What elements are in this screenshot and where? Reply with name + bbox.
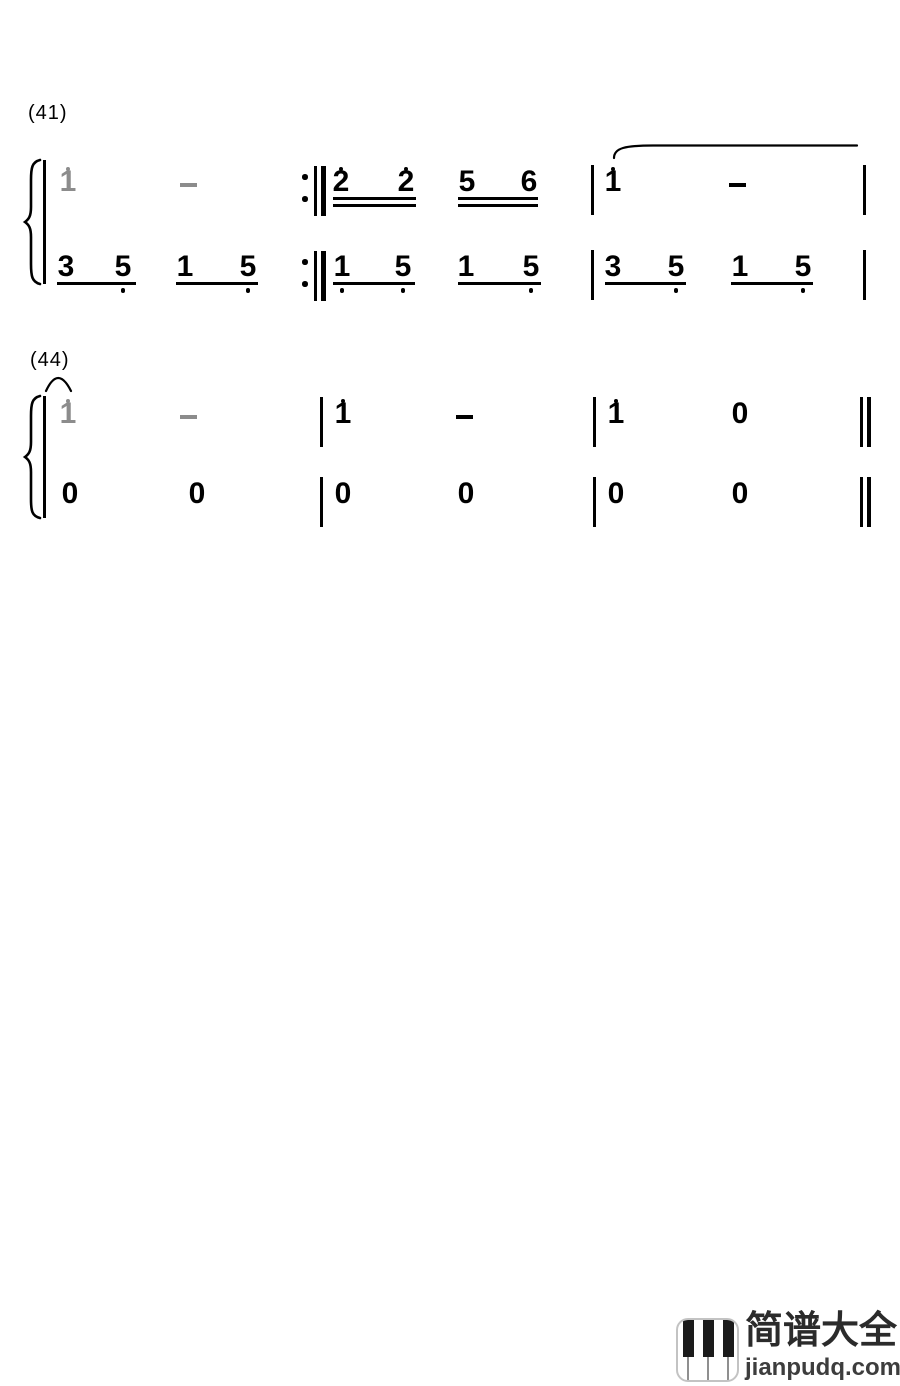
piano-keys-icon <box>676 1318 739 1382</box>
note-0: 0 <box>727 480 753 508</box>
barline <box>320 477 323 527</box>
barline <box>593 477 596 527</box>
note-0: 0 <box>603 480 629 508</box>
note-1-high: 1 <box>603 400 629 428</box>
white-key-divider <box>707 1357 709 1380</box>
duration-dash <box>456 415 473 419</box>
watermark-site: jianpudq.com <box>745 1355 900 1381</box>
note-1-high: 1 <box>55 400 81 428</box>
notation-system-44: (44)1110000000 <box>0 0 900 1386</box>
note-1-high: 1 <box>330 400 356 428</box>
barline <box>593 397 596 447</box>
final-bar-thin <box>860 477 863 527</box>
watermark: 简谱大全 jianpudq.com <box>676 1314 900 1386</box>
white-key-divider <box>727 1357 729 1380</box>
note-0: 0 <box>330 480 356 508</box>
black-key <box>723 1320 734 1357</box>
final-bar-thick <box>867 477 872 527</box>
white-key-divider <box>687 1357 689 1380</box>
note-0: 0 <box>57 480 83 508</box>
sheet-page: (41)122561351515153515(44)1110000000 简谱大… <box>0 0 900 1386</box>
note-0: 0 <box>184 480 210 508</box>
final-bar-thick <box>867 397 872 447</box>
note-0: 0 <box>453 480 479 508</box>
note-0: 0 <box>727 400 753 428</box>
measure-number-label: (44) <box>30 348 70 372</box>
system-start-barline <box>43 396 46 518</box>
watermark-brand: 简谱大全 <box>745 1308 897 1352</box>
duration-dash <box>180 415 197 419</box>
black-key <box>683 1320 694 1357</box>
final-bar-thin <box>860 397 863 447</box>
barline <box>320 397 323 447</box>
black-key <box>703 1320 714 1357</box>
